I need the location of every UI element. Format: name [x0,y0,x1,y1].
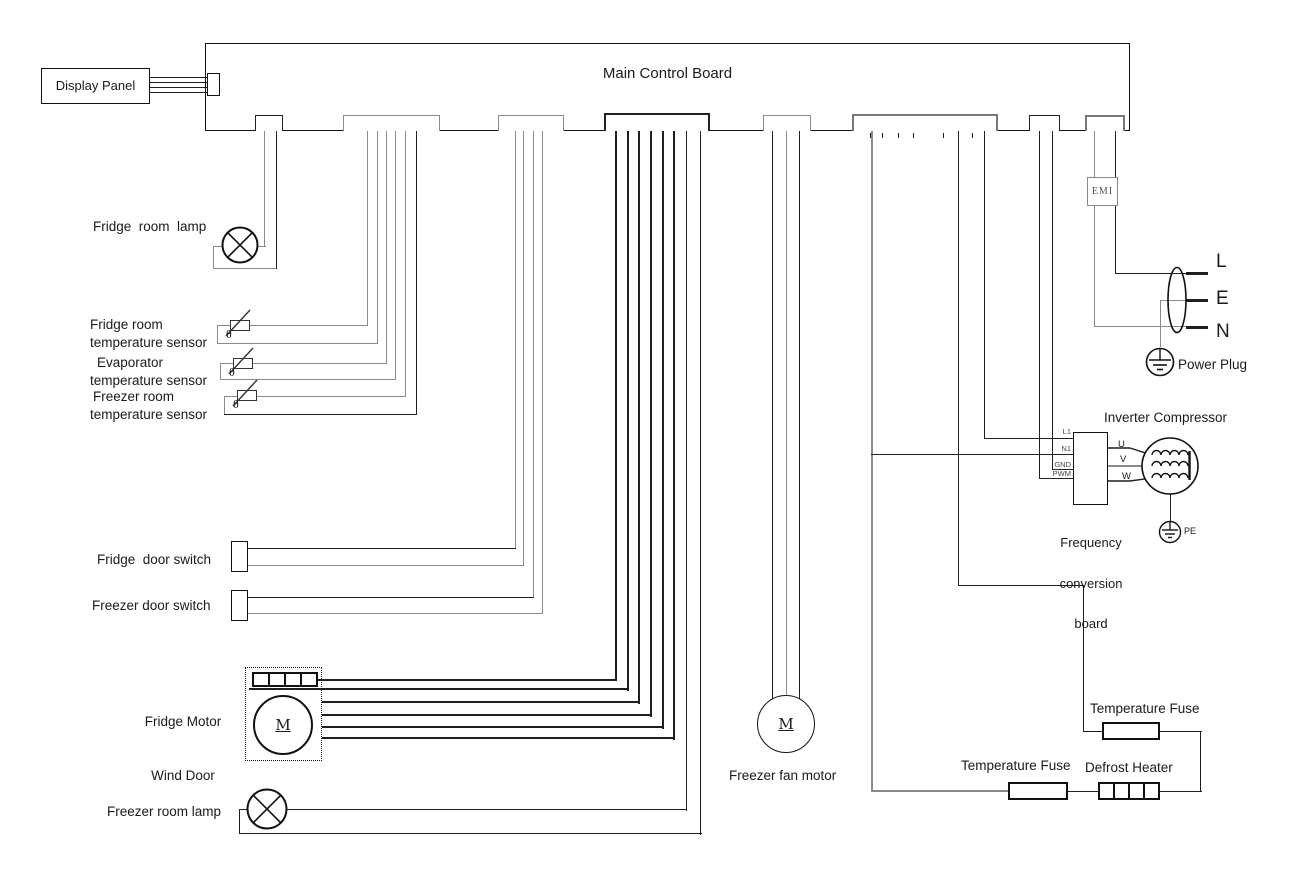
wire [1115,206,1116,274]
wire [871,454,1074,455]
wire [1039,131,1040,479]
wire [213,268,277,269]
defrost-heater [1098,782,1160,800]
fridge-temp-sensor-label-2: temperature sensor [90,336,207,350]
wire [287,809,687,810]
fridge-temp-sensor-label-1: Fridge room [90,318,163,332]
inverter-compressor-label: Inverter Compressor [1104,411,1227,425]
wire [395,131,396,380]
plug-terminal-n-label: N [1216,322,1230,342]
wire [786,131,787,697]
frequency-board-label-1: Frequency [1053,536,1129,550]
wire [220,363,221,380]
inverter-compressor-icon [1108,430,1208,502]
wire [276,131,277,269]
wire [257,396,406,397]
wire [150,77,207,78]
wiring-diagram: Main Control Board Display Panel Fridge … [0,0,1294,874]
wire [253,363,387,364]
wire [984,131,985,439]
motor-letter: M [778,715,793,733]
temperature-fuse-bottom [1008,782,1068,800]
plug-terminal-l-label: L [1216,252,1227,272]
wire [686,131,687,811]
defrost-heater-label: Defrost Heater [1085,761,1173,775]
pe-ground-icon [1158,520,1184,546]
wire [1052,131,1053,470]
wire [322,726,664,728]
wire [322,701,640,703]
wire [224,414,417,415]
wind-door-label: Fridge Motor Wind Door [133,677,233,821]
wire [150,82,207,83]
wire [405,131,406,397]
wire [984,438,1074,439]
connector-wind-door [604,113,710,131]
wind-door-connector [252,672,318,687]
connector-power [852,114,998,131]
connector-lamp [255,115,283,131]
fridge-door-switch-label: Fridge door switch [97,553,211,567]
wind-door-motor: M [253,695,313,755]
pin-n1-label: N1 [1051,445,1071,453]
wire [662,131,664,729]
wire [1039,478,1074,479]
wind-door-label-2: Wind Door [133,767,233,785]
frequency-board-label-2: conversion [1053,577,1129,591]
pin-pwm-label: PWM [1046,470,1071,478]
main-control-board-title: Main Control Board [205,66,1130,82]
earth-ground-icon [1144,344,1176,378]
wire [638,131,640,704]
freezer-fan-motor-label: Freezer fan motor [729,769,836,783]
wire [1160,791,1202,792]
pin-l1-label: L1 [1051,428,1071,436]
wire [224,396,225,415]
temperature-fuse-top [1102,722,1160,740]
wire [1094,131,1095,178]
wire [248,565,524,566]
wire [871,790,1010,792]
wire [1115,131,1116,178]
freezer-temp-sensor-label-1: Freezer room [93,390,174,404]
wire [972,133,973,138]
freezer-temp-sensor-label-2: temperature sensor [90,408,207,422]
wire [799,131,800,700]
connector-door-switches [498,115,564,131]
theta-symbol: θ [233,398,239,411]
freezer-fan-motor: M [757,695,815,753]
wire [213,246,214,269]
wire [1068,791,1100,792]
wire [650,131,652,717]
wire [772,131,773,700]
wire [322,714,652,716]
evap-temp-sensor-label-1: Evaporator [97,356,163,370]
wire [515,131,516,549]
wire [542,131,543,614]
wire [1200,731,1201,792]
wire [386,131,387,364]
temp-fuse-bottom-label: Temperature Fuse [961,759,1071,773]
connector-signal [1029,115,1060,131]
wire [898,133,899,138]
wire [523,131,524,566]
wire [533,131,534,598]
wire [871,131,873,791]
temp-fuse-top-label: Temperature Fuse [1090,702,1200,716]
wire [673,131,675,740]
wire [248,548,516,549]
display-panel-connector [207,73,220,96]
wire [248,597,534,598]
display-panel: Display Panel [41,68,150,104]
fridge-door-switch-symbol [231,541,248,572]
wire [258,246,266,247]
freezer-room-lamp-label: Freezer room lamp [107,805,221,819]
power-plug-body-icon [1166,266,1190,334]
wire [615,131,617,681]
pin-gnd-label: GND [1046,461,1071,469]
wire [217,325,218,344]
wire [377,131,378,344]
display-panel-label: Display Panel [56,79,136,93]
wire [250,325,368,326]
wire [416,131,417,415]
freezer-lamp-icon [246,788,288,830]
wire [913,133,914,138]
wire [700,131,701,835]
fridge-room-lamp-label: Fridge room lamp [93,220,206,234]
plug-terminal-e-label: E [1216,289,1229,309]
fridge-lamp-icon [221,226,259,264]
wire [150,92,207,93]
wire [367,131,368,326]
wire [322,737,675,739]
pe-label: PE [1184,527,1196,536]
wire [943,133,944,138]
frequency-board-label: Frequency conversion board [1053,509,1129,658]
frequency-board-label-3: board [1053,617,1129,631]
wire [1160,300,1161,347]
wire [882,133,883,138]
freezer-door-switch-symbol [231,590,248,621]
wire [1094,206,1095,327]
connector-fan-motor [763,115,811,131]
emi-label: EMI [1092,186,1113,197]
frequency-conversion-board [1073,432,1108,505]
evap-temp-sensor-label-2: temperature sensor [90,374,207,388]
connector-mains [1085,115,1125,131]
wire [627,131,629,691]
power-plug-label: Power Plug [1178,358,1247,372]
wire [1160,731,1202,732]
wire [958,131,959,586]
emi-filter: EMI [1087,177,1118,206]
wind-door-label-1: Fridge Motor [133,713,233,731]
freezer-door-switch-label: Freezer door switch [92,599,211,613]
motor-letter: M [275,716,290,734]
wire [264,131,265,247]
wire [318,679,617,681]
wire [239,809,240,834]
connector-sensors [343,115,440,131]
wire [248,613,543,614]
wire [150,87,207,88]
theta-symbol: θ [226,328,232,341]
wire [1083,731,1104,732]
wire [239,833,702,834]
